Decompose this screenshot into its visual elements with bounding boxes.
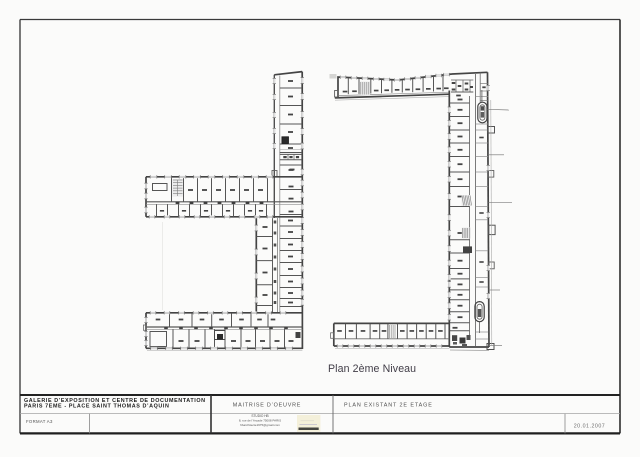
svg-text:hbarchitecte1975@gmail.com: hbarchitecte1975@gmail.com — [240, 423, 280, 427]
svg-text:PARIS 7EME - PLACE SAINT THOMA: PARIS 7EME - PLACE SAINT THOMAS D’AQUIN — [24, 403, 170, 409]
svg-text:FORMAT A3: FORMAT A3 — [26, 419, 53, 424]
svg-text:MAITRISE D’OEUVRE: MAITRISE D’OEUVRE — [233, 402, 301, 408]
svg-text:Plan 2ème Niveau: Plan 2ème Niveau — [328, 363, 416, 375]
svg-text:PLAN EXISTANT 2E ETAGE: PLAN EXISTANT 2E ETAGE — [344, 402, 433, 408]
svg-text:20.01.2007: 20.01.2007 — [574, 423, 606, 429]
svg-text:STUDIO HB: STUDIO HB — [251, 414, 268, 418]
svg-text:8, rue de l’Arcade 75008 PARIS: 8, rue de l’Arcade 75008 PARIS — [239, 418, 281, 422]
